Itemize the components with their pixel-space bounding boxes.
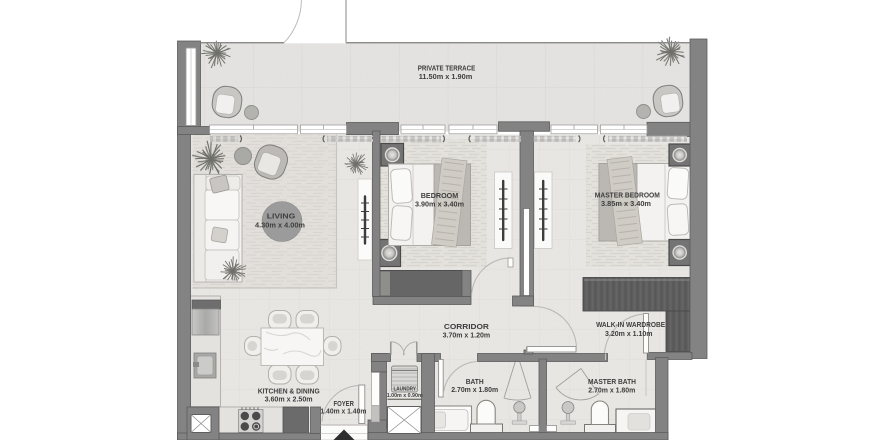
svg-text:1.40m x 1.40m: 1.40m x 1.40m	[320, 407, 366, 416]
svg-text:3.60m x 2.50m: 3.60m x 2.50m	[265, 394, 313, 403]
svg-text:WALK-IN WARDROBE: WALK-IN WARDROBE	[596, 320, 665, 329]
svg-text:LAUNDRY: LAUNDRY	[393, 387, 416, 393]
svg-text:11.50m x 1.90m: 11.50m x 1.90m	[419, 72, 473, 81]
svg-text:3.70m x 1.20m: 3.70m x 1.20m	[443, 331, 491, 340]
svg-text:4.30m x 4.00m: 4.30m x 4.00m	[255, 221, 305, 230]
svg-text:3.90m x 3.40m: 3.90m x 3.40m	[415, 199, 464, 208]
svg-text:2.70m x 1.80m: 2.70m x 1.80m	[588, 385, 635, 394]
svg-text:2.70m x 1.80m: 2.70m x 1.80m	[451, 385, 498, 394]
svg-text:3.20m x 1.10m: 3.20m x 1.10m	[605, 329, 653, 338]
svg-text:LIVING: LIVING	[267, 212, 296, 221]
svg-text:1.00m x 0.90m: 1.00m x 0.90m	[387, 393, 423, 399]
svg-text:3.85m x 3.40m: 3.85m x 3.40m	[601, 199, 651, 208]
